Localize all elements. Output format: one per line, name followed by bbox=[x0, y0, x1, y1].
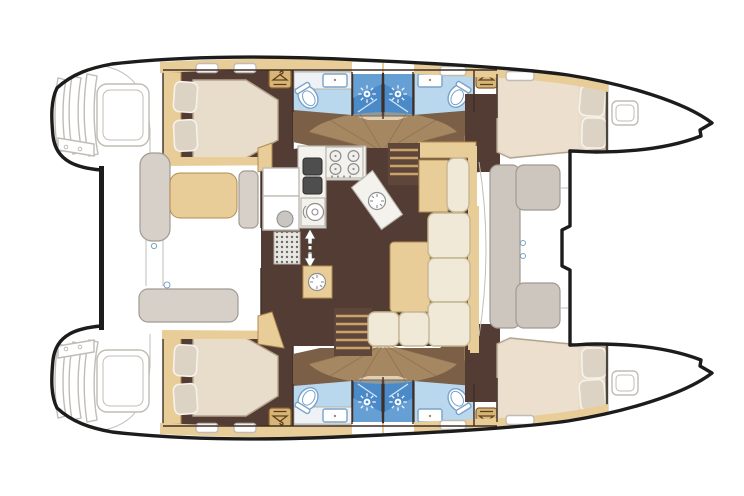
cockpit-side-bench bbox=[140, 153, 170, 241]
fridge-cabinet bbox=[263, 168, 299, 196]
cockpit bbox=[139, 153, 258, 322]
floor-plan-canvas bbox=[0, 0, 744, 496]
stairs-starboard-hull bbox=[334, 308, 372, 356]
forward-seat bbox=[490, 165, 560, 328]
seat-drain bbox=[521, 241, 526, 246]
mast-cabinet bbox=[303, 266, 332, 298]
cockpit-aft-bench bbox=[139, 289, 238, 322]
stairs-port-hull bbox=[388, 143, 420, 185]
deck-ring bbox=[164, 282, 170, 288]
sofa-frame bbox=[470, 206, 479, 353]
galley-sink bbox=[303, 158, 322, 175]
cockpit-table bbox=[170, 173, 237, 218]
catamaran-floor-plan bbox=[0, 0, 744, 496]
deck-drain bbox=[151, 243, 156, 248]
peninsula-vent bbox=[369, 193, 386, 210]
salon-table bbox=[390, 242, 430, 312]
forward-crossbeam bbox=[562, 151, 570, 345]
foredeck bbox=[479, 151, 570, 345]
forward-cabinet bbox=[418, 142, 476, 158]
sofa-cushion bbox=[368, 312, 399, 346]
salon bbox=[258, 142, 479, 356]
sofa-cushion bbox=[399, 312, 429, 346]
transom-platform-beam bbox=[99, 166, 104, 330]
cockpit-side-bench bbox=[239, 171, 258, 228]
seat-drain bbox=[521, 254, 526, 259]
windshield-line bbox=[479, 162, 486, 336]
galley-fixture bbox=[301, 198, 325, 226]
round-fixture bbox=[277, 211, 293, 227]
chaise-cushion bbox=[447, 158, 469, 212]
stove bbox=[326, 147, 363, 178]
chaise-base bbox=[419, 160, 448, 212]
sofa-cushion bbox=[428, 302, 470, 346]
galley-sink bbox=[303, 177, 322, 194]
entry-mat bbox=[274, 232, 300, 264]
sofa-cushion bbox=[428, 258, 470, 302]
sofa-cushion bbox=[428, 213, 470, 258]
